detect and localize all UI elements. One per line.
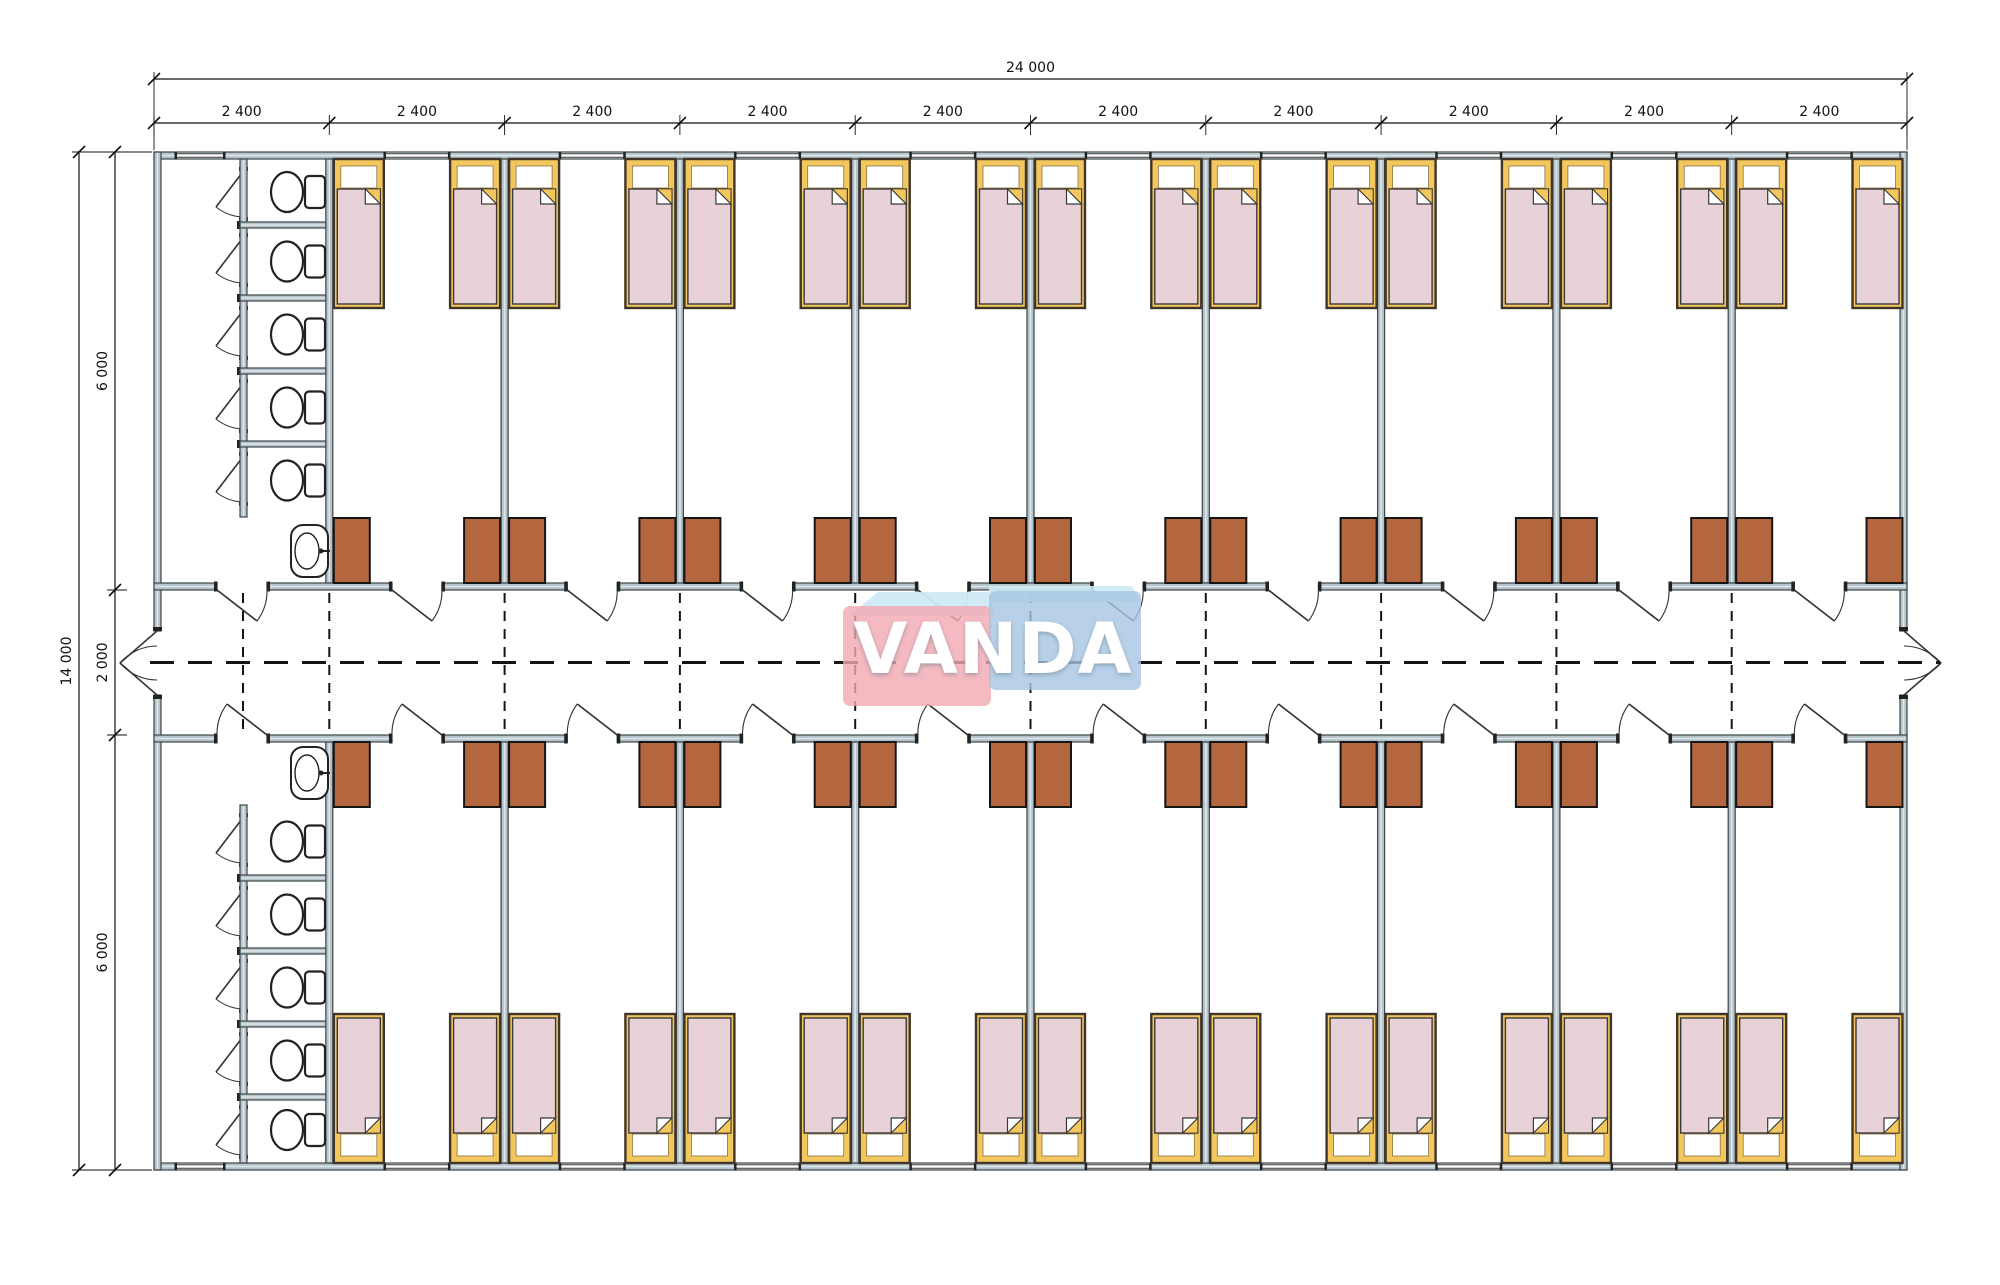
bed bbox=[1677, 1014, 1727, 1163]
stall-door-swing bbox=[216, 310, 244, 346]
toilet-tank bbox=[305, 1045, 325, 1077]
sink-tap bbox=[319, 771, 324, 776]
wardrobe bbox=[990, 742, 1026, 807]
door-jamb-cap bbox=[1791, 582, 1795, 592]
entrance-door-arc bbox=[120, 663, 157, 680]
bed bbox=[1151, 1014, 1201, 1163]
bed-pillow-area bbox=[1743, 1134, 1779, 1156]
stall-door-arc bbox=[216, 492, 244, 502]
bed-pillow-area bbox=[1158, 1134, 1194, 1156]
room-door-arc bbox=[1308, 590, 1318, 621]
bed bbox=[976, 1014, 1026, 1163]
sink-bowl bbox=[295, 533, 319, 569]
entrance-door-leaf bbox=[120, 663, 157, 695]
wardrobe bbox=[1165, 742, 1201, 807]
room-door-arc bbox=[257, 590, 267, 621]
room-door-arc bbox=[1133, 590, 1143, 621]
toilet-bowl bbox=[271, 822, 303, 862]
door-jamb-cap bbox=[1899, 695, 1908, 699]
bed-blanket bbox=[1155, 1018, 1198, 1133]
sink-tap bbox=[319, 549, 324, 554]
room-door-swing bbox=[567, 590, 607, 621]
bed-blanket bbox=[1740, 1018, 1783, 1133]
room-door-swing bbox=[753, 704, 793, 735]
room-door-swing bbox=[1103, 704, 1143, 735]
bed-blanket bbox=[629, 189, 672, 304]
wardrobe bbox=[639, 742, 675, 807]
wardrobe bbox=[464, 742, 500, 807]
bed-blanket bbox=[1214, 1018, 1257, 1133]
bed-pillow-area bbox=[457, 166, 493, 188]
wardrobe bbox=[1516, 742, 1552, 807]
wardrobe bbox=[1210, 518, 1246, 583]
stall-door-arc bbox=[216, 1072, 244, 1082]
dimension-label: 2 400 bbox=[923, 104, 963, 120]
bed bbox=[509, 159, 559, 308]
wardrobe bbox=[1561, 518, 1597, 583]
wardrobe bbox=[1516, 518, 1552, 583]
bed-blanket bbox=[688, 189, 731, 304]
stall-door-swing bbox=[216, 237, 244, 273]
toilet-tank bbox=[305, 176, 325, 208]
room-door-swing bbox=[1444, 590, 1484, 621]
wardrobe bbox=[1736, 518, 1772, 583]
toilet-tank bbox=[305, 972, 325, 1004]
entrance-door-arc bbox=[1904, 646, 1941, 663]
room-door-arc bbox=[217, 704, 227, 735]
wardrobe bbox=[1867, 518, 1903, 583]
toilet-tank bbox=[305, 899, 325, 931]
toilet-tank bbox=[305, 246, 325, 278]
toilet-bowl bbox=[271, 461, 303, 501]
bed-blanket bbox=[1389, 1018, 1432, 1133]
bed bbox=[1677, 159, 1727, 308]
stall-door-arc bbox=[216, 207, 244, 217]
window-jamb-cap bbox=[223, 1163, 226, 1171]
wardrobe bbox=[1210, 742, 1246, 807]
door-jamb-cap bbox=[1441, 582, 1445, 592]
bed bbox=[860, 159, 910, 308]
door-jamb-cap bbox=[1265, 582, 1269, 592]
stall-door-arc bbox=[216, 1145, 244, 1155]
room-door-swing bbox=[1093, 590, 1133, 621]
stall-door-swing bbox=[216, 1036, 244, 1072]
bed-blanket bbox=[513, 1018, 556, 1133]
stall-door-swing bbox=[216, 456, 244, 492]
stall-door-swing bbox=[216, 963, 244, 999]
bed-blanket bbox=[513, 189, 556, 304]
room-door-swing bbox=[577, 704, 617, 735]
toilet-bowl bbox=[271, 895, 303, 935]
dimension-label: 2 400 bbox=[1624, 104, 1664, 120]
floor-plan-canvas: 24 0002 4002 4002 4002 4002 4002 4002 40… bbox=[0, 0, 2000, 1285]
bed-blanket bbox=[1740, 189, 1783, 304]
bed bbox=[450, 1014, 500, 1163]
bed-pillow-area bbox=[1860, 166, 1896, 188]
bed-blanket bbox=[1856, 189, 1899, 304]
bed-blanket bbox=[1505, 189, 1548, 304]
bed-blanket bbox=[1155, 189, 1198, 304]
room-door-arc bbox=[1834, 590, 1844, 621]
bed-pillow-area bbox=[341, 166, 377, 188]
dimension-label: 2 400 bbox=[748, 104, 788, 120]
dimension-label: 24 000 bbox=[1006, 60, 1055, 76]
bed-blanket bbox=[980, 1018, 1023, 1133]
toilet-bowl bbox=[271, 1041, 303, 1081]
bed-blanket bbox=[688, 1018, 731, 1133]
room-door-swing bbox=[392, 590, 432, 621]
bed bbox=[1853, 159, 1903, 308]
bed-pillow-area bbox=[516, 1134, 552, 1156]
wardrobe bbox=[860, 518, 896, 583]
door-jamb-cap bbox=[564, 582, 568, 592]
room-door-swing bbox=[227, 704, 267, 735]
room-door-swing bbox=[1278, 704, 1318, 735]
wardrobe bbox=[1165, 518, 1201, 583]
wardrobe bbox=[860, 742, 896, 807]
window-jamb-cap bbox=[223, 152, 226, 160]
bed-pillow-area bbox=[1393, 1134, 1429, 1156]
door-jamb-cap bbox=[153, 695, 162, 699]
bed-pillow-area bbox=[983, 166, 1019, 188]
dimension-label: 2 400 bbox=[222, 104, 262, 120]
bed-pillow-area bbox=[983, 1134, 1019, 1156]
bed-blanket bbox=[1681, 189, 1724, 304]
wardrobe bbox=[1341, 742, 1377, 807]
bed bbox=[625, 159, 675, 308]
bed bbox=[1210, 1014, 1260, 1163]
stall-door-swing bbox=[216, 171, 244, 207]
bed-blanket bbox=[1389, 189, 1432, 304]
dimension-label: 2 000 bbox=[95, 642, 111, 682]
floor-plan-drawing: 24 0002 4002 4002 4002 4002 4002 4002 40… bbox=[0, 0, 2000, 1285]
dimension-label: 2 400 bbox=[572, 104, 612, 120]
toilet-tank bbox=[305, 465, 325, 497]
dimension-label: 2 400 bbox=[1098, 104, 1138, 120]
door-jamb-cap bbox=[1616, 582, 1620, 592]
door-jamb-cap bbox=[740, 582, 744, 592]
bed-blanket bbox=[1856, 1018, 1899, 1133]
door-jamb-cap bbox=[1143, 734, 1147, 744]
room-door-arc bbox=[1444, 704, 1454, 735]
bed bbox=[860, 1014, 910, 1163]
room-door-arc bbox=[743, 704, 753, 735]
bed-blanket bbox=[454, 1018, 497, 1133]
room-door-arc bbox=[432, 590, 442, 621]
bed-blanket bbox=[1214, 189, 1257, 304]
dimension-label: 2 400 bbox=[1273, 104, 1313, 120]
bed-pillow-area bbox=[1042, 166, 1078, 188]
bed bbox=[1386, 1014, 1436, 1163]
toilet-bowl bbox=[271, 172, 303, 212]
bed-pillow-area bbox=[1393, 166, 1429, 188]
bed bbox=[976, 159, 1026, 308]
room-door-arc bbox=[1619, 704, 1629, 735]
bed bbox=[334, 1014, 384, 1163]
bed-blanket bbox=[863, 1018, 906, 1133]
bed-pillow-area bbox=[1684, 1134, 1720, 1156]
bed-blanket bbox=[1564, 1018, 1607, 1133]
room-door-swing bbox=[217, 590, 257, 621]
bed-pillow-area bbox=[1509, 1134, 1545, 1156]
bed-blanket bbox=[1564, 189, 1607, 304]
bed bbox=[1736, 159, 1786, 308]
toilet-bowl bbox=[271, 315, 303, 355]
bed bbox=[1853, 1014, 1903, 1163]
room-door-arc bbox=[1659, 590, 1669, 621]
bed-blanket bbox=[1330, 189, 1373, 304]
door-jamb-cap bbox=[617, 734, 621, 744]
door-jamb-cap bbox=[267, 734, 271, 744]
door-jamb-cap bbox=[441, 734, 445, 744]
room-door-swing bbox=[928, 704, 968, 735]
sink-bowl bbox=[295, 755, 319, 791]
dimension-label: 14 000 bbox=[59, 637, 75, 686]
door-jamb-cap bbox=[153, 627, 162, 631]
bed-blanket bbox=[1330, 1018, 1373, 1133]
entrance-door-arc bbox=[1904, 663, 1941, 680]
door-jamb-cap bbox=[1669, 734, 1673, 744]
wardrobe bbox=[684, 742, 720, 807]
bed bbox=[1561, 159, 1611, 308]
bed-pillow-area bbox=[1860, 1134, 1896, 1156]
bed-pillow-area bbox=[1217, 1134, 1253, 1156]
wardrobe bbox=[1561, 742, 1597, 807]
bed bbox=[1035, 159, 1085, 308]
room-door-swing bbox=[1268, 590, 1308, 621]
bed-pillow-area bbox=[516, 166, 552, 188]
door-jamb-cap bbox=[214, 582, 218, 592]
wardrobe bbox=[815, 742, 851, 807]
bed bbox=[801, 1014, 851, 1163]
room-door-swing bbox=[1454, 704, 1494, 735]
bed bbox=[1386, 159, 1436, 308]
stall-door-swing bbox=[216, 890, 244, 926]
room-door-arc bbox=[958, 590, 968, 621]
door-jamb-cap bbox=[1844, 734, 1848, 744]
toilet-tank bbox=[305, 1114, 325, 1146]
bed-blanket bbox=[629, 1018, 672, 1133]
room-door-swing bbox=[402, 704, 442, 735]
wardrobe bbox=[334, 742, 370, 807]
bed bbox=[801, 159, 851, 308]
door-jamb-cap bbox=[1090, 582, 1094, 592]
door-jamb-cap bbox=[792, 734, 796, 744]
bed-blanket bbox=[804, 1018, 847, 1133]
wardrobe bbox=[639, 518, 675, 583]
bed-blanket bbox=[804, 189, 847, 304]
bed bbox=[1035, 1014, 1085, 1163]
room-door-arc bbox=[1794, 704, 1804, 735]
bed bbox=[1736, 1014, 1786, 1163]
toilet-tank bbox=[305, 826, 325, 858]
room-door-arc bbox=[783, 590, 793, 621]
bed-pillow-area bbox=[1334, 1134, 1370, 1156]
bed-pillow-area bbox=[691, 166, 727, 188]
toilet-bowl bbox=[271, 388, 303, 428]
stall-door-arc bbox=[216, 273, 244, 283]
bed-pillow-area bbox=[632, 166, 668, 188]
bed-pillow-area bbox=[1158, 166, 1194, 188]
bed-blanket bbox=[863, 189, 906, 304]
bed-pillow-area bbox=[867, 166, 903, 188]
toilet-tank bbox=[305, 319, 325, 351]
door-jamb-cap bbox=[1899, 627, 1908, 631]
bed-pillow-area bbox=[1042, 1134, 1078, 1156]
bed bbox=[334, 159, 384, 308]
bed bbox=[684, 1014, 734, 1163]
bed-blanket bbox=[980, 189, 1023, 304]
window-jamb-cap bbox=[175, 152, 178, 160]
dimension-label: 6 000 bbox=[95, 351, 111, 391]
wardrobe bbox=[684, 518, 720, 583]
wardrobe bbox=[990, 518, 1026, 583]
room-door-swing bbox=[1794, 590, 1834, 621]
wardrobe bbox=[1736, 742, 1772, 807]
dimension-label: 6 000 bbox=[95, 932, 111, 972]
wardrobe bbox=[1386, 742, 1422, 807]
bed bbox=[1327, 159, 1377, 308]
bed-pillow-area bbox=[1568, 166, 1604, 188]
dimension-label: 2 400 bbox=[1799, 104, 1839, 120]
wardrobe bbox=[1867, 742, 1903, 807]
stall-door-swing bbox=[216, 1109, 244, 1145]
room-door-swing bbox=[1804, 704, 1844, 735]
room-door-arc bbox=[607, 590, 617, 621]
stall-door-arc bbox=[216, 999, 244, 1009]
stall-door-swing bbox=[216, 817, 244, 853]
bed-pillow-area bbox=[691, 1134, 727, 1156]
room-door-arc bbox=[392, 704, 402, 735]
bed-pillow-area bbox=[632, 1134, 668, 1156]
entrance-door-leaf bbox=[1904, 663, 1941, 695]
wardrobe bbox=[334, 518, 370, 583]
door-jamb-cap bbox=[1493, 734, 1497, 744]
room-door-arc bbox=[1484, 590, 1494, 621]
bed-blanket bbox=[454, 189, 497, 304]
door-jamb-cap bbox=[1318, 734, 1322, 744]
wardrobe bbox=[509, 742, 545, 807]
bed-pillow-area bbox=[808, 166, 844, 188]
bed bbox=[1151, 159, 1201, 308]
toilet-bowl bbox=[271, 968, 303, 1008]
room-door-swing bbox=[1619, 590, 1659, 621]
wardrobe bbox=[815, 518, 851, 583]
bed-blanket bbox=[1039, 1018, 1082, 1133]
bed bbox=[1561, 1014, 1611, 1163]
room-door-swing bbox=[918, 590, 958, 621]
dimension-label: 2 400 bbox=[1449, 104, 1489, 120]
wardrobe bbox=[1035, 742, 1071, 807]
bed bbox=[509, 1014, 559, 1163]
wardrobe bbox=[1035, 518, 1071, 583]
bed bbox=[1210, 159, 1260, 308]
room-door-swing bbox=[1629, 704, 1669, 735]
bed-pillow-area bbox=[457, 1134, 493, 1156]
wardrobe bbox=[509, 518, 545, 583]
bed-pillow-area bbox=[1743, 166, 1779, 188]
bed bbox=[1502, 159, 1552, 308]
bed-blanket bbox=[1039, 189, 1082, 304]
bed-pillow-area bbox=[1509, 166, 1545, 188]
entrance-door-leaf bbox=[120, 631, 157, 663]
bed-blanket bbox=[337, 189, 380, 304]
room-door-arc bbox=[1093, 704, 1103, 735]
toilet-bowl bbox=[271, 1110, 303, 1150]
room-door-arc bbox=[567, 704, 577, 735]
bed-blanket bbox=[337, 1018, 380, 1133]
bed-pillow-area bbox=[1684, 166, 1720, 188]
door-jamb-cap bbox=[915, 582, 919, 592]
bed-pillow-area bbox=[808, 1134, 844, 1156]
bed-blanket bbox=[1505, 1018, 1548, 1133]
toilet-bowl bbox=[271, 242, 303, 282]
wardrobe bbox=[1341, 518, 1377, 583]
toilet-tank bbox=[305, 392, 325, 424]
bed-pillow-area bbox=[1217, 166, 1253, 188]
wardrobe bbox=[1386, 518, 1422, 583]
entrance-door-arc bbox=[120, 646, 157, 663]
bed-pillow-area bbox=[341, 1134, 377, 1156]
wardrobe bbox=[1691, 742, 1727, 807]
wardrobe bbox=[464, 518, 500, 583]
bed bbox=[450, 159, 500, 308]
room-door-swing bbox=[743, 590, 783, 621]
door-jamb-cap bbox=[967, 734, 971, 744]
door-jamb-cap bbox=[389, 582, 393, 592]
window-jamb-cap bbox=[175, 1163, 178, 1171]
stall-door-arc bbox=[216, 346, 244, 356]
bed-pillow-area bbox=[1334, 166, 1370, 188]
bed-pillow-area bbox=[1568, 1134, 1604, 1156]
dimension-label: 2 400 bbox=[397, 104, 437, 120]
bed-blanket bbox=[1681, 1018, 1724, 1133]
bed bbox=[1327, 1014, 1377, 1163]
room-door-arc bbox=[918, 704, 928, 735]
bed bbox=[684, 159, 734, 308]
bed bbox=[1502, 1014, 1552, 1163]
bed bbox=[625, 1014, 675, 1163]
stall-door-arc bbox=[216, 419, 244, 429]
room-door-arc bbox=[1268, 704, 1278, 735]
stall-door-arc bbox=[216, 926, 244, 936]
stall-door-arc bbox=[216, 853, 244, 863]
stall-door-swing bbox=[216, 383, 244, 419]
wardrobe bbox=[1691, 518, 1727, 583]
entrance-door-leaf bbox=[1904, 631, 1941, 663]
bed-pillow-area bbox=[867, 1134, 903, 1156]
